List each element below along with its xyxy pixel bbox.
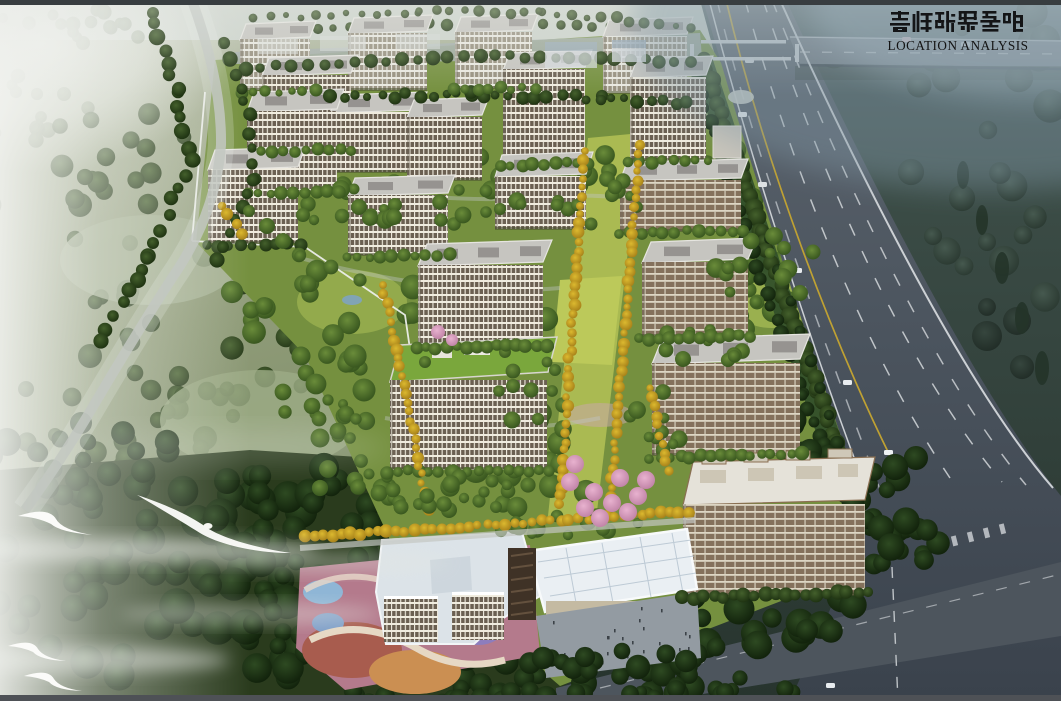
svg-text:LOCATION ANALYSIS: LOCATION ANALYSIS xyxy=(888,38,1029,53)
